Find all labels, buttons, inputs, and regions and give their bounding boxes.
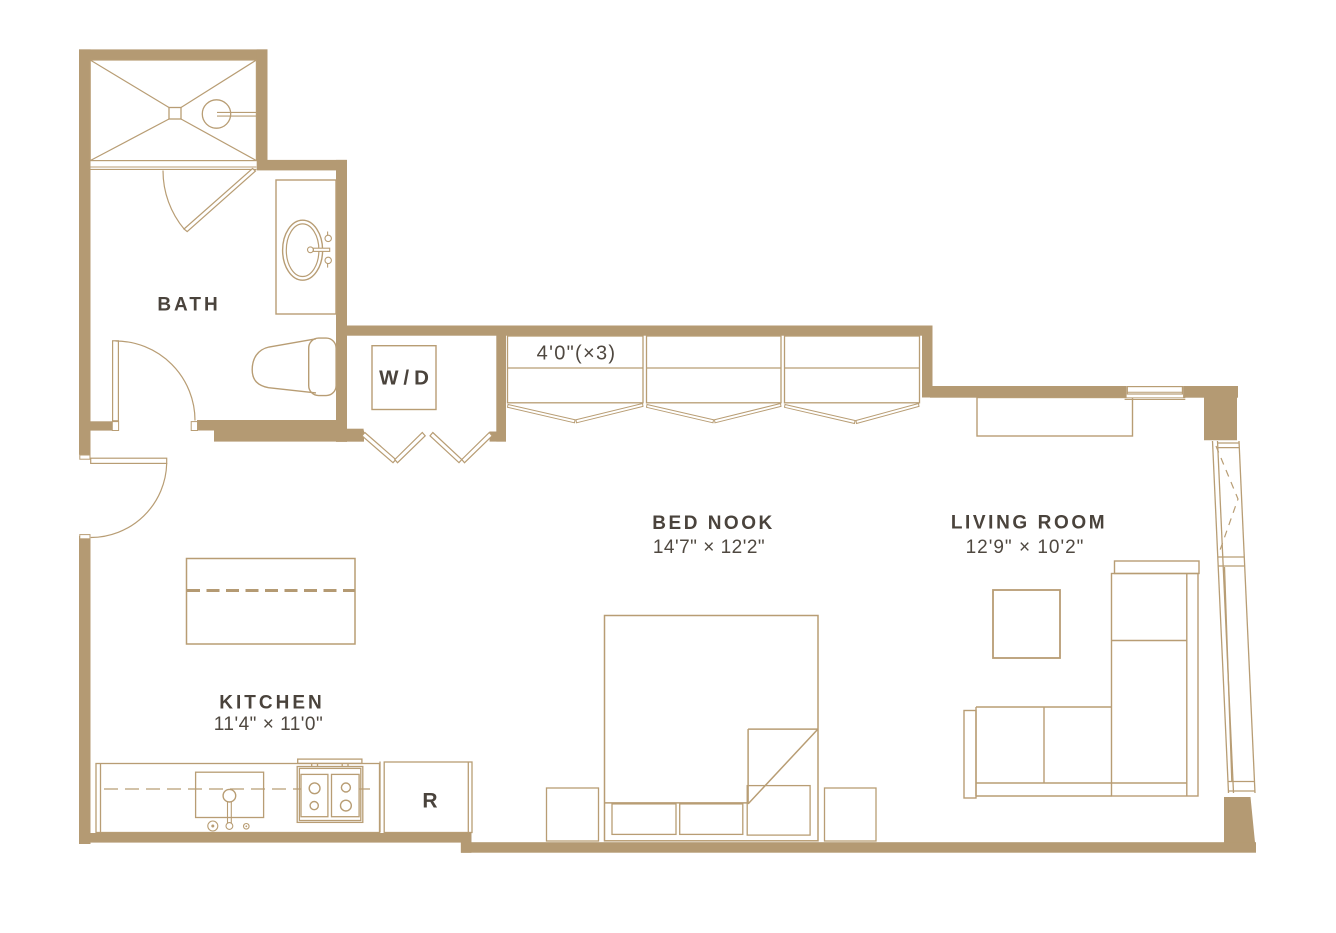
svg-text:LIVING ROOM: LIVING ROOM — [951, 513, 1107, 534]
svg-text:12'9" × 10'2": 12'9" × 10'2" — [966, 537, 1085, 558]
svg-text:W/D: W/D — [379, 367, 434, 390]
svg-text:BATH: BATH — [157, 294, 220, 315]
svg-text:BED NOOK: BED NOOK — [652, 513, 774, 534]
svg-text:14'7" × 12'2": 14'7" × 12'2" — [653, 537, 765, 558]
svg-text:KITCHEN: KITCHEN — [219, 692, 324, 713]
svg-text:R: R — [422, 789, 437, 812]
svg-text:4'0"(×3): 4'0"(×3) — [537, 342, 617, 364]
svg-text:11'4" × 11'0": 11'4" × 11'0" — [214, 714, 323, 735]
